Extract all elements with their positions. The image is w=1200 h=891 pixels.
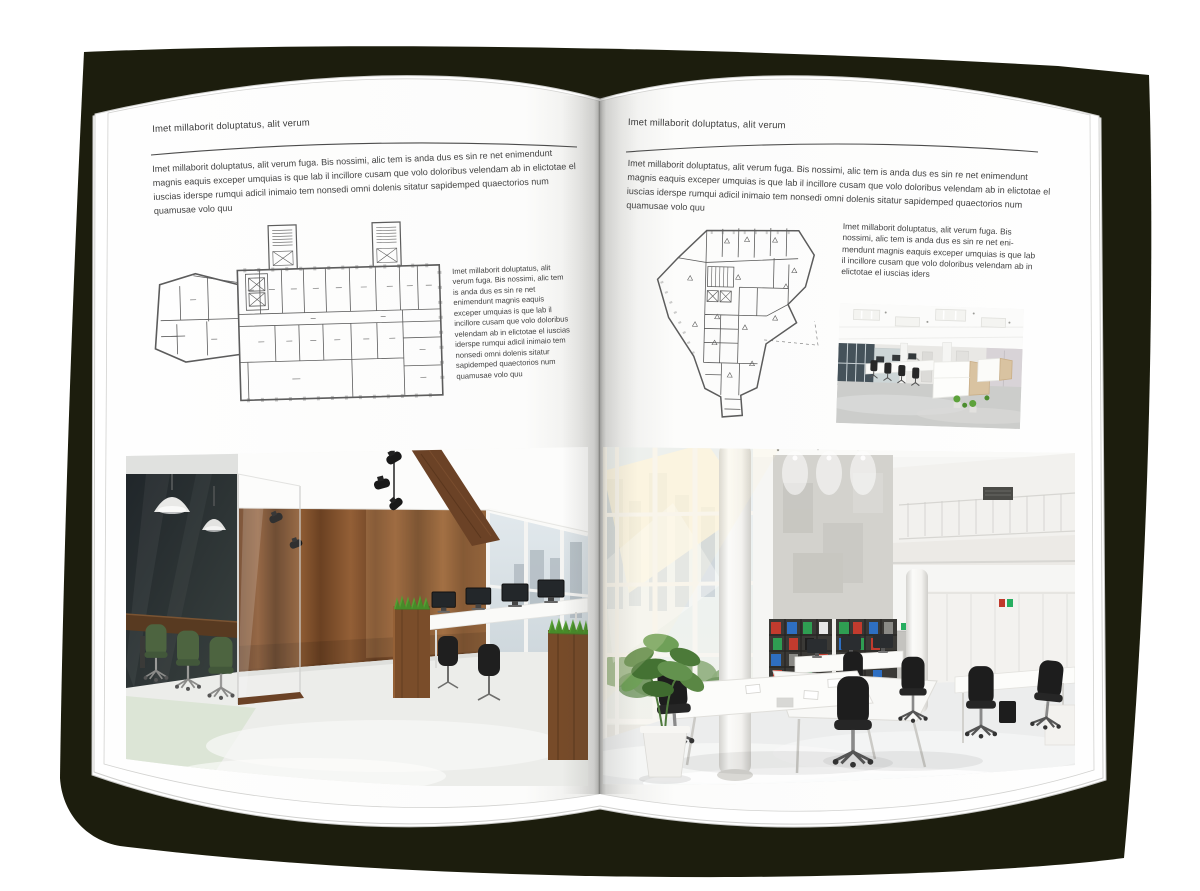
right-office-photo	[603, 443, 1075, 788]
waste-bin	[999, 701, 1016, 723]
left-page-caption: Imet millaborit doluptatus, alit verum f…	[452, 262, 574, 382]
small-office-photo	[836, 303, 1024, 429]
left-floor-plan-drawing	[148, 217, 451, 417]
cubicle-cabinet	[933, 360, 970, 399]
right-floor-plan-drawing	[642, 221, 835, 428]
right-page-caption: Imet millaborit doluptatus, alit verum f…	[841, 221, 1041, 284]
left-office-photo	[126, 446, 588, 786]
safety-sign-green	[1007, 599, 1013, 607]
wood-planter-2	[548, 630, 588, 760]
magazine-spread-mockup: Imet millaborit doluptatus, alit verum I…	[0, 0, 1200, 891]
safety-sign-red	[999, 599, 1005, 607]
wood-planter	[394, 606, 430, 698]
